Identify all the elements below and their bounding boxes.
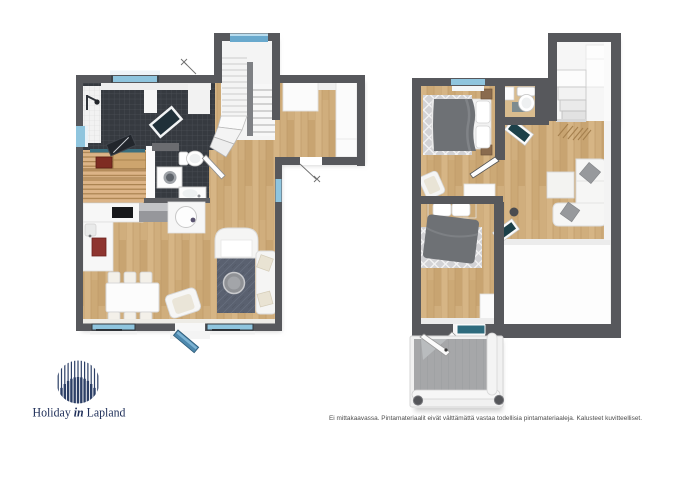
svg-text:Holiday in Lapland: Holiday in Lapland [33, 405, 126, 420]
svg-text:Ei mittakaavassa. Pintamateria: Ei mittakaavassa. Pintamateriaalit eivät… [329, 415, 642, 422]
